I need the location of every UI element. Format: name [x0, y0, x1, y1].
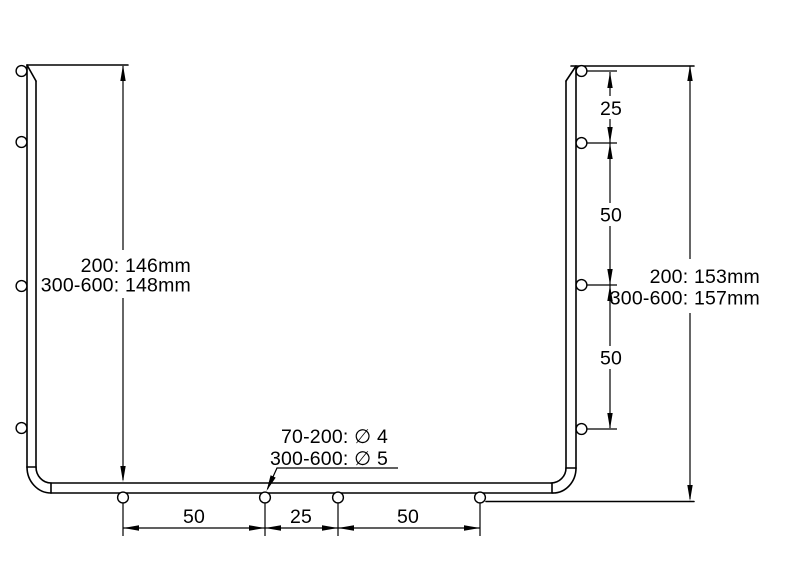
arrow-left-icon: [338, 525, 354, 530]
mounting-holes-right: [576, 66, 587, 435]
mounting-hole: [118, 492, 129, 503]
mounting-hole: [16, 423, 27, 434]
arrow-up-icon: [607, 143, 612, 159]
arrow-up-icon: [607, 72, 612, 88]
arrow-up-icon: [120, 65, 125, 81]
mounting-hole: [16, 137, 27, 148]
arrow-down-icon: [607, 127, 612, 143]
right-bend-inner-arc: [551, 468, 566, 483]
technical-drawing-page: 200: 146mm 300-600: 148mm 200: 153mm 300…: [0, 0, 800, 566]
arrow-left-icon: [123, 525, 139, 530]
spacing-label-50-right: 50: [397, 506, 419, 528]
arrow-down-icon: [607, 413, 612, 429]
mounting-hole: [576, 424, 587, 435]
arrow-down-icon: [687, 485, 692, 501]
leader-line: [268, 468, 399, 489]
arrow-down-icon: [120, 466, 125, 482]
arrow-left-icon: [265, 525, 281, 530]
spacing-label-50-upper: 50: [600, 205, 622, 227]
arrow-down-icon: [607, 269, 612, 285]
hole-diameter-row2: 300-600: ∅ 5: [270, 448, 388, 470]
right-height-label-row2: 300-600: 157mm: [610, 288, 760, 310]
bottom-hole-spacing-dimension: 50 25 50: [123, 503, 480, 536]
right-hole-spacing-dimension: 25 50 50: [587, 71, 622, 429]
left-bend-outer-arc: [27, 467, 51, 493]
left-bend-inner-arc: [36, 467, 51, 483]
hole-diameter-callout: 70-200: ∅ 4 300-600: ∅ 5: [267, 426, 399, 491]
arrow-right-icon: [322, 525, 338, 530]
right-height-label-row1: 200: 153mm: [650, 266, 760, 288]
right-bend-outer-arc: [553, 468, 576, 493]
mounting-hole: [576, 138, 587, 149]
mounting-hole: [16, 281, 27, 292]
mounting-hole: [260, 492, 271, 503]
spacing-label-50-lower: 50: [600, 348, 622, 370]
mounting-hole: [16, 66, 27, 77]
mounting-hole: [576, 280, 587, 291]
left-height-dimension: 200: 146mm 300-600: 148mm: [41, 65, 191, 482]
hole-diameter-row1: 70-200: ∅ 4: [281, 426, 388, 448]
mounting-holes-left: [16, 66, 27, 434]
arrow-right-icon: [464, 525, 480, 530]
mounting-hole: [576, 66, 587, 77]
u-bracket-drawing: 200: 146mm 300-600: 148mm 200: 153mm 300…: [0, 0, 800, 566]
mounting-hole: [475, 492, 486, 503]
arrow-right-icon: [249, 525, 265, 530]
mounting-hole: [333, 492, 344, 503]
spacing-label-50-left: 50: [183, 506, 205, 528]
left-flange-top-bevel: [27, 65, 36, 81]
left-height-label-row2: 300-600: 148mm: [41, 275, 191, 297]
spacing-label-25: 25: [290, 506, 312, 528]
spacing-label-25: 25: [600, 98, 622, 120]
right-flange-top-bevel: [566, 66, 576, 81]
right-height-dimension: 200: 153mm 300-600: 157mm: [610, 65, 760, 501]
arrow-up-icon: [687, 65, 692, 81]
